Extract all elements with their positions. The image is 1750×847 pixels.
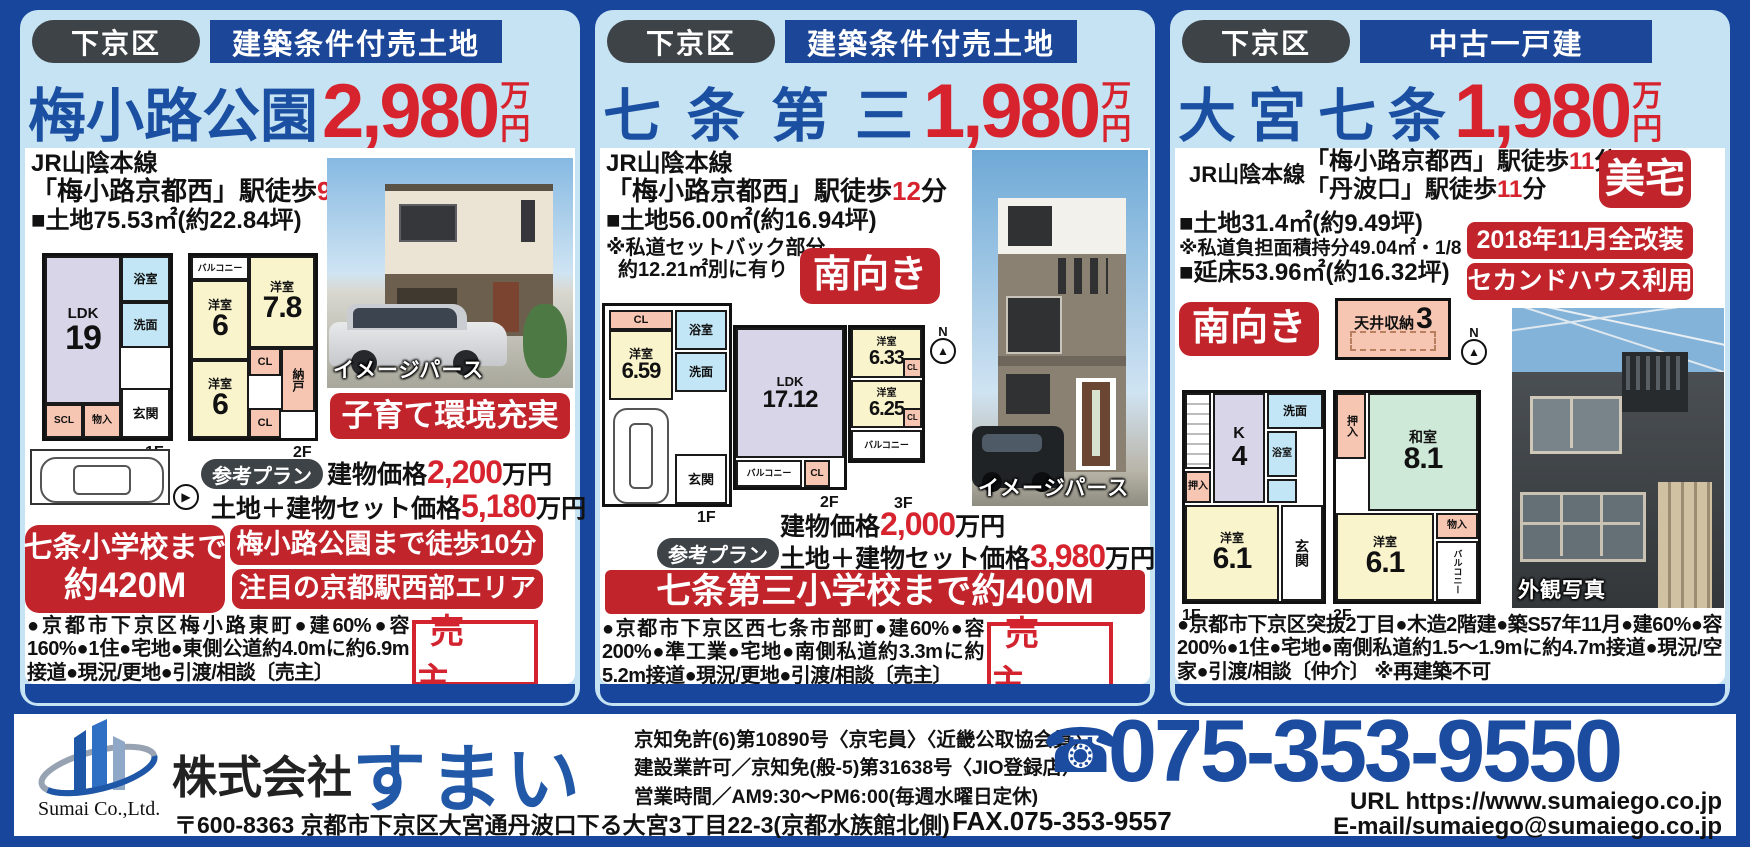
park-distance-badge: 梅小路公園まで徒歩10分 (230, 525, 543, 565)
floorplan-2f: 押入 和室8.1 洋室6.1 物入 バルコニー (1333, 390, 1481, 604)
floorplan-room: 浴室 (1267, 431, 1297, 477)
building-price: 建物価格2,200万円 (327, 454, 552, 491)
floorplan-room: 押入 (1185, 471, 1211, 503)
real-estate-flyer: 下京区 建築条件付売土地 梅小路公園 2,980 万円 JR山陰本線 「梅小路京… (0, 0, 1750, 847)
floorplan-room: 洋室6.1 (1336, 513, 1434, 601)
direction-badge: 南向き (1179, 302, 1319, 356)
image-caption: イメージパース (333, 354, 484, 384)
card-content: JR山陰本線 「梅小路京都西」駅徒歩9分 ■土地75.53㎡(約22.84坪) … (25, 148, 575, 684)
floorplan-room: バルコニー (1436, 541, 1478, 601)
site-plan (30, 449, 170, 505)
floorplan-room: 洋室6 (191, 280, 249, 360)
property-title: 七条第三 1,980 万円 (603, 62, 1131, 148)
floorplan-2f: LDK17.12 バルコニー CL (733, 325, 847, 490)
compass-icon: ▶ (173, 484, 199, 510)
compass-icon: N ▲ (930, 325, 956, 364)
price-unit: 万円 (500, 81, 530, 146)
floorplan-room: CL (903, 408, 922, 428)
district-badge: 下京区 (607, 20, 775, 63)
floorplan-room: CL (249, 348, 281, 376)
floorplan-room: 洋室6.59 (609, 330, 673, 400)
floorplan-3f: 洋室6.33 CL 洋室6.25 CL バルコニー (848, 325, 925, 463)
seller-box: 売 主 (412, 620, 538, 686)
listing-card-umekoji-park: 下京区 建築条件付売土地 梅小路公園 2,980 万円 JR山陰本線 「梅小路京… (20, 10, 580, 706)
property-details: ●京都市下京区西七条市部町●建60%●容200%●準工業●宅地●南側私道約3.3… (602, 618, 984, 688)
floorplan-room: K4 (1213, 393, 1265, 503)
property-price: 2,980 (322, 79, 497, 146)
district-badge: 下京区 (32, 20, 200, 63)
station-access-2: 「丹波口」駅徒歩11分 (1305, 178, 1546, 202)
land-area: ■土地56.00㎡(約16.94坪) (606, 209, 877, 233)
photo-caption: 外観写真 (1518, 574, 1606, 604)
price-unit: 万円 (1101, 81, 1131, 146)
floorplan-2f: バルコニー 洋室7.8 洋室6 CL 納戸 洋室6 CL (188, 253, 318, 441)
floorplan-room: バルコニー (191, 256, 249, 280)
north-arrow-icon: ▲ (1468, 346, 1480, 358)
floorplan-room: 和室8.1 (1368, 393, 1478, 511)
second-house-badge: セカンドハウス利用 (1467, 263, 1693, 300)
license-info: 京知免許(6)第10890号〈京宅員〉〈近畿公取協会員〉 建設業許可／京知免(般… (634, 726, 1092, 811)
card-content: JR山陰本線 「梅小路京都西」駅徒歩12分 ■土地56.00㎡(約16.94坪)… (600, 148, 1150, 684)
phone-number: 075-353-9550 (1108, 700, 1620, 802)
property-details: ●京都市下京区梅小路東町●建60%●容160%●1住●宅地●東側公道約4.0mに… (27, 615, 409, 685)
floorplan-room: 浴室 (121, 256, 170, 302)
floorplan-room (1267, 479, 1297, 503)
property-name: 大宮七条 (1178, 88, 1458, 146)
category-banner: 中古一戸建 (1360, 20, 1652, 63)
fax-number: FAX.075-353-9557 (952, 806, 1172, 837)
land-area: ■土地31.4㎡(約9.49坪) (1179, 212, 1423, 236)
website-url: URL https://www.sumaiego.co.jp (1350, 788, 1722, 816)
card-header: 下京区 中古一戸建 (1182, 20, 1652, 63)
property-details: ●京都市下京区突抜2丁目●木造2階建●築S57年11月●建60%●容200%●1… (1177, 614, 1722, 684)
floorplan-room: 玄関 (675, 454, 727, 504)
card-header: 下京区 建築条件付売土地 (607, 20, 1077, 63)
tree (523, 304, 567, 378)
rail-line: JR山陰本線 (31, 152, 158, 176)
house-render-image: イメージパース (327, 158, 573, 388)
floorplan-room: 玄関 (121, 388, 170, 438)
company-logo-icon (34, 718, 184, 805)
company-address: 〒600-8363 京都市下京区大宮通丹波口下る大宮3丁目22-3(京都水族館北… (174, 806, 950, 840)
property-title: 大宮七条 1,980 万円 (1178, 62, 1662, 148)
school-distance-badge: 七条小学校まで 約420M (25, 525, 225, 613)
station-access: 「梅小路京都西」駅徒歩12分 (606, 178, 947, 204)
property-title: 梅小路公園 2,980 万円 (28, 62, 530, 148)
floorplan-room: 洗面 (675, 352, 727, 392)
floorplan-room: 洗面 (121, 302, 170, 348)
floorplan-room: CL (249, 408, 281, 438)
car-icon (613, 408, 669, 504)
renovation-badge: 2018年11月全改装 (1467, 222, 1693, 259)
card-content: JR山陰本線 「梅小路京都西」駅徒歩11分 「丹波口」駅徒歩11分 美宅 ■土地… (1175, 148, 1725, 684)
area-highlight-badge: 注目の京都駅西部エリア (232, 569, 543, 609)
footer: Sumai Co.,Ltd. 株式会社 すまい 〒600-8363 京都市下京区… (14, 714, 1736, 836)
category-label: 建築条件付売土地 (232, 21, 480, 63)
floorplan-room: 押入 (1336, 393, 1366, 459)
floorplan-room: 浴室 (675, 310, 727, 350)
setback-note-1: ※私道セットバック部分 (606, 238, 825, 258)
rail-line: JR山陰本線 (1189, 164, 1305, 186)
floorplan-room: LDK19 (45, 256, 121, 404)
floorplan-1f: K4 洗面 浴室 押入 洋室6.1 玄関 (1182, 390, 1326, 604)
listing-card-omiya-shichijo: 下京区 中古一戸建 大宮七条 1,980 万円 JR山陰本線 「梅小路京都西」駅… (1170, 10, 1730, 706)
north-arrow-icon: ▲ (937, 345, 949, 357)
property-price: 1,980 (1454, 79, 1629, 146)
floorplan-room: 納戸 (281, 348, 315, 412)
setback-note-2: 約12.21㎡別に有り (618, 260, 788, 280)
beautiful-home-badge: 美宅 (1599, 150, 1691, 208)
seller-box: 売 主 (987, 622, 1113, 688)
east-arrow-icon: ▶ (181, 491, 190, 503)
floorplan-room: SCL (45, 404, 83, 438)
road-share-note: ※私道負担面積持分49.04㎡・1/8 (1179, 239, 1461, 258)
floorplan-room: 洋室6.1 (1185, 505, 1279, 601)
floorplan-1f: CL 洋室6.59 浴室 洗面 玄関 (602, 303, 732, 507)
floorplan-room: 玄関 (1281, 505, 1323, 601)
floorplan-room: 物入 (83, 404, 121, 438)
district-label: 下京区 (71, 22, 161, 62)
category-banner: 建築条件付売土地 (785, 20, 1077, 63)
attic-storage-plan: 天井収納 3 (1335, 298, 1451, 360)
direction-badge: 南向き (800, 248, 940, 304)
station-access: 「梅小路京都西」駅徒歩9分 (31, 178, 358, 204)
floorplan-1f: LDK19 浴室 洗面 SCL 物入 玄関 (42, 253, 173, 441)
floorplan-room: バルコニー (736, 460, 802, 487)
floorplan-room: CL (804, 460, 830, 487)
exterior-photo: 外観写真 (1512, 308, 1724, 608)
reference-plan-badge: 参考プラン (657, 538, 779, 568)
property-name: 梅小路公園 (28, 88, 318, 146)
attic-dashed-area (1350, 331, 1436, 351)
floorplan-room: 洋室7.8 (249, 256, 315, 348)
floorplan-room: 物入 (1436, 513, 1478, 539)
category-banner: 建築条件付売土地 (210, 20, 502, 63)
property-price: 1,980 (923, 79, 1098, 146)
station-access-1: 「梅小路京都西」駅徒歩11分 (1305, 150, 1618, 174)
floor-area: ■延床53.96㎡(約16.32坪) (1179, 261, 1450, 285)
license-line-1: 京知免許(6)第10890号〈京宅員〉〈近畿公取協会員〉 (634, 726, 1092, 754)
floorplan-room: LDK17.12 (736, 328, 844, 458)
card-header: 下京区 建築条件付売土地 (32, 20, 502, 63)
reference-plan-badge: 参考プラン (201, 459, 323, 489)
compass-icon: N ▲ (1461, 326, 1487, 365)
email-address: E-mail/sumaiego@sumaiego.co.jp (1333, 813, 1722, 841)
floorplan-room: CL (903, 358, 922, 378)
license-line-2: 建設業許可／京知免(般-5)第31638号〈JIO登録店〉 (634, 754, 1092, 782)
land-area: ■土地75.53㎡(約22.84坪) (31, 209, 302, 233)
image-caption: イメージパース (978, 472, 1129, 502)
listing-card-shichijo-daisan: 下京区 建築条件付売土地 七条第三 1,980 万円 JR山陰本線 「梅小路京都… (595, 10, 1155, 706)
feature-badge: 子育て環境充実 (330, 393, 570, 439)
district-badge: 下京区 (1182, 20, 1350, 63)
floorplan-room: バルコニー (851, 430, 922, 460)
floor-label: 1F (697, 509, 716, 527)
rail-line: JR山陰本線 (606, 152, 733, 176)
set-price: 土地＋建物セット価格5,180万円 (211, 488, 586, 525)
building (1512, 372, 1724, 608)
stairs (1185, 393, 1211, 469)
floorplan-room: 洗面 (1267, 393, 1323, 429)
floorplan-room: 洋室6 (191, 360, 249, 438)
floorplan-room: CL (609, 310, 673, 330)
house-render-image: イメージパース (972, 150, 1148, 506)
car-icon (40, 457, 164, 503)
price-unit: 万円 (1632, 81, 1662, 146)
logo-caption: Sumai Co.,Ltd. (38, 798, 160, 821)
property-name: 七条第三 (603, 88, 939, 146)
